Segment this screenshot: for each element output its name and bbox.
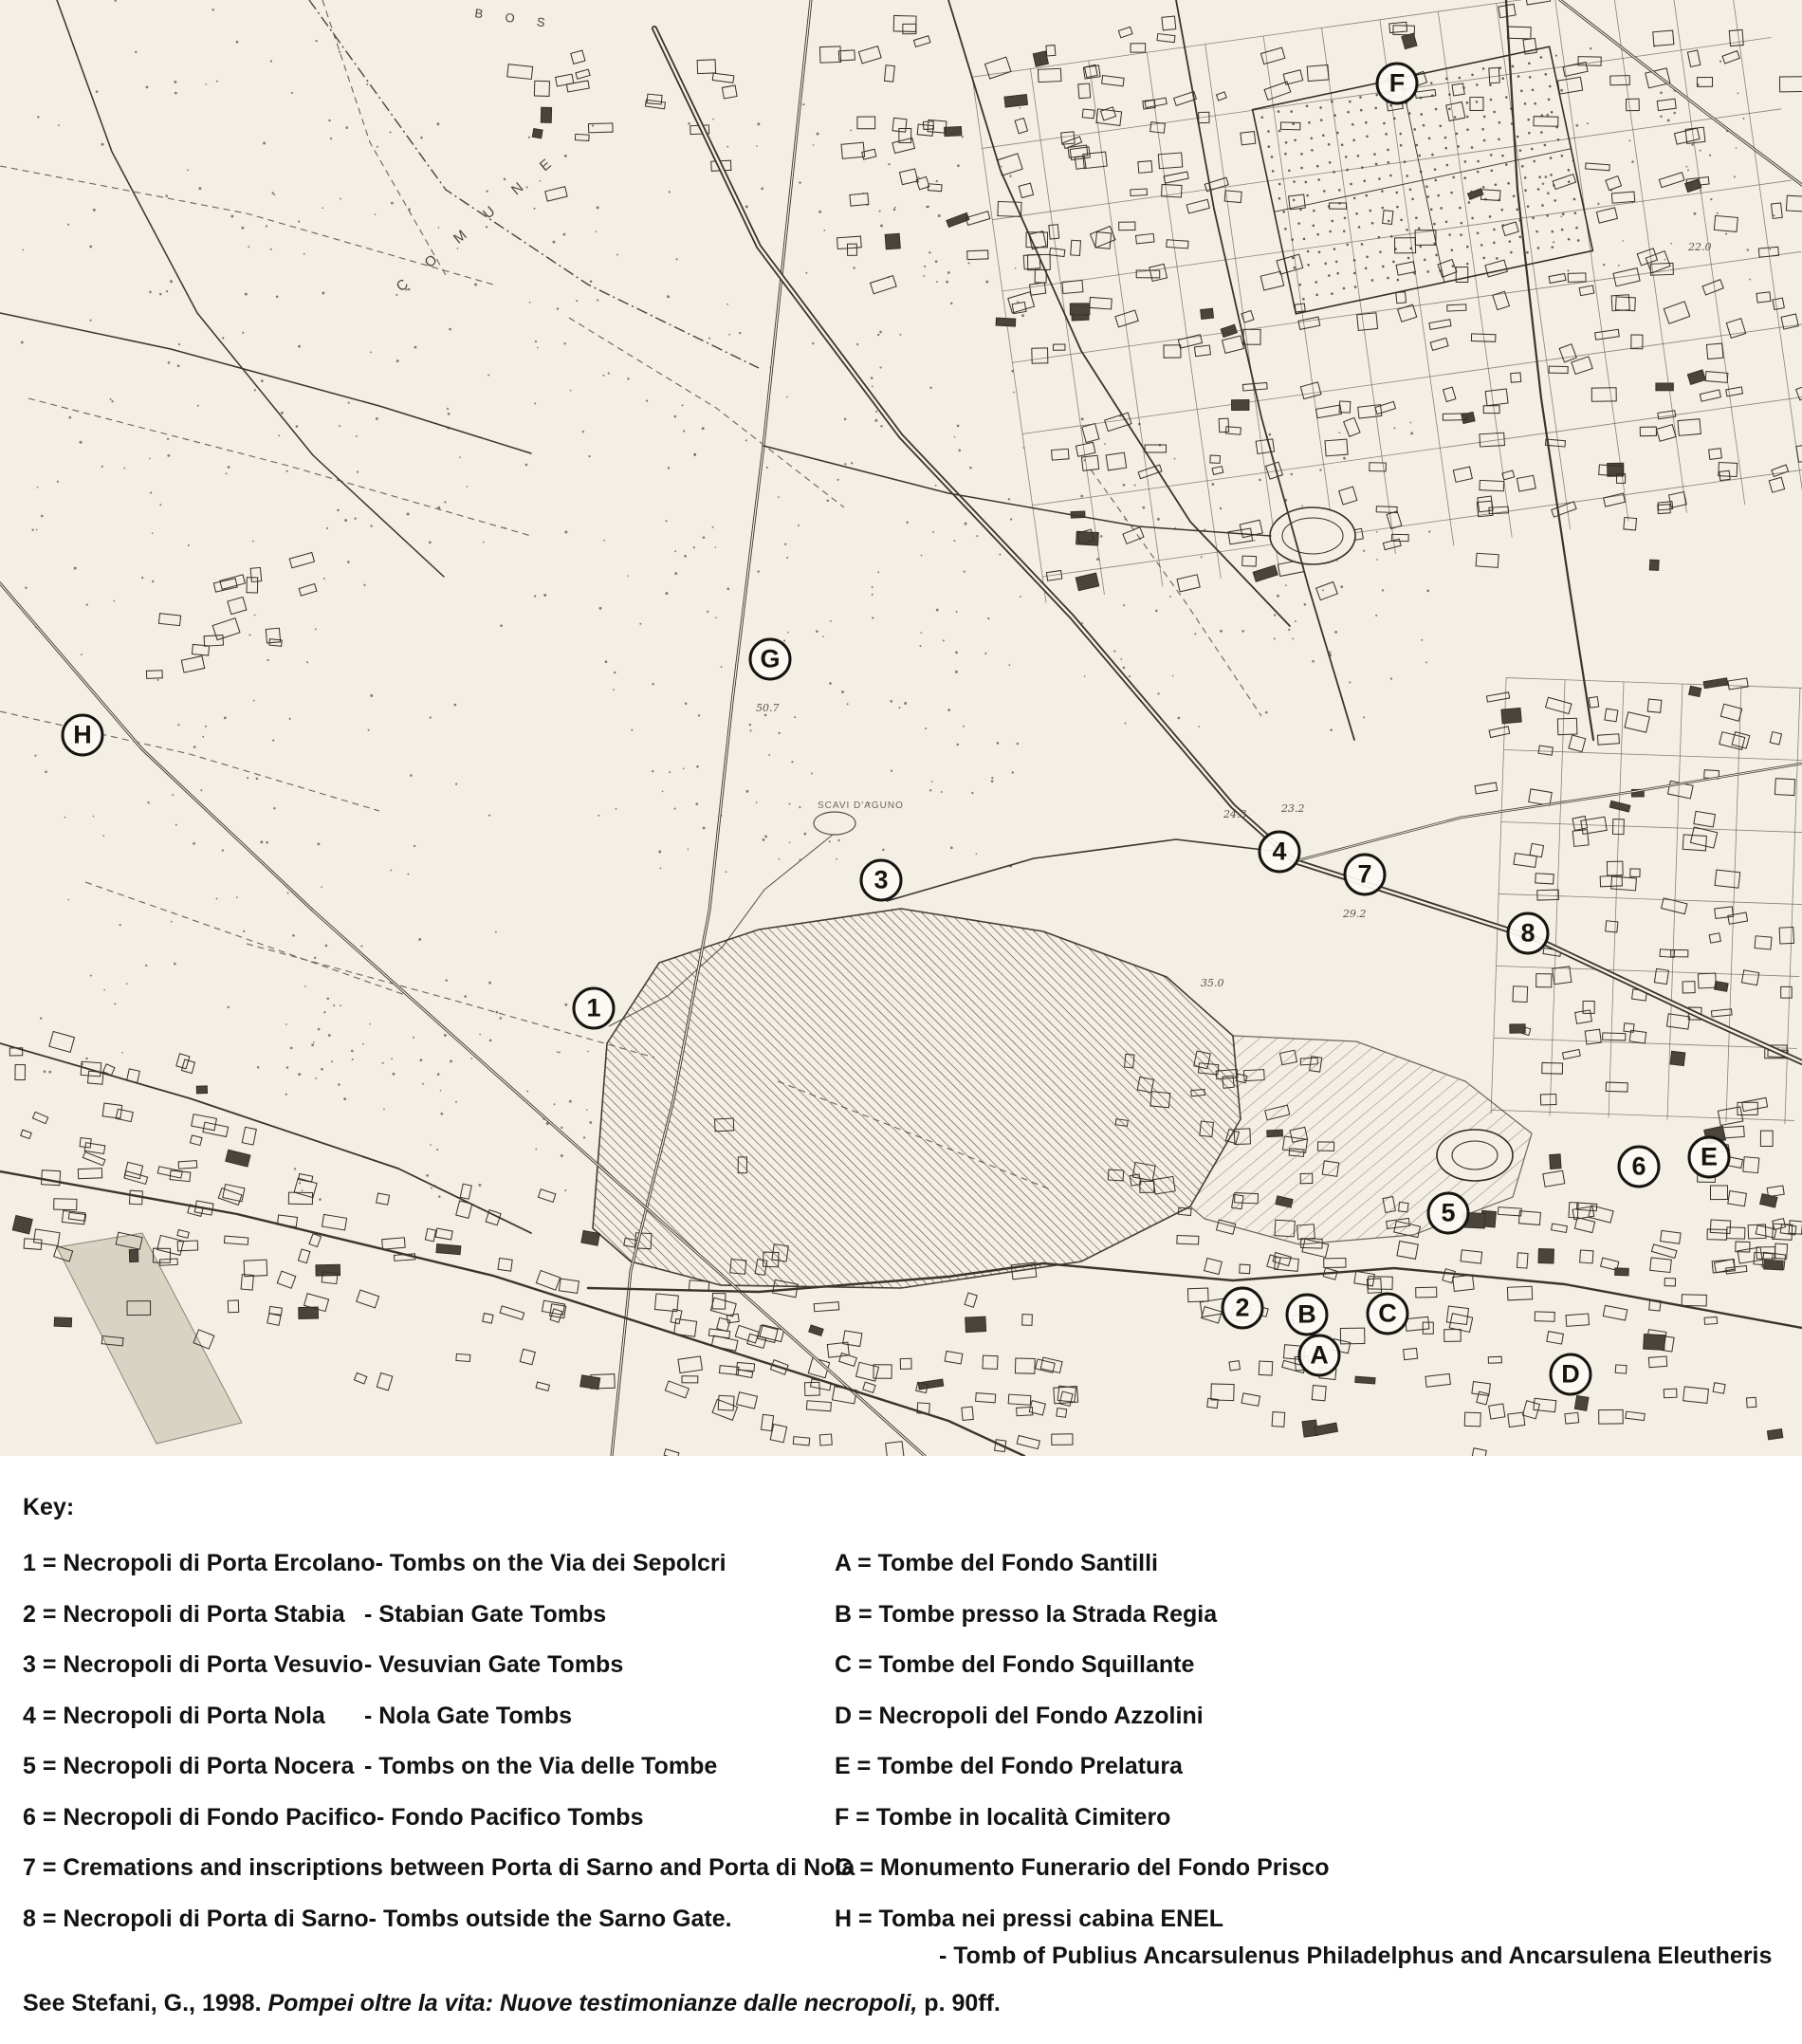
key-entry-5-name: 5 = Necropoli di Porta Nocera — [23, 1753, 364, 1780]
key-entry-B: B = Tombe presso la Strada Regia — [835, 1601, 1217, 1629]
key-entry-7: 7 = Cremations and inscriptions between … — [23, 1854, 855, 1882]
citation: See Stefani, G., 1998. Pompei oltre la v… — [23, 1990, 1001, 2017]
citation-prefix: See Stefani, G., 1998. — [23, 1990, 267, 2016]
key-entry-2-name: 2 = Necropoli di Porta Stabia — [23, 1601, 364, 1629]
map-marker-A: A — [1298, 1335, 1341, 1377]
key-entry-8-desc: - Tombs outside the Sarno Gate. — [369, 1906, 732, 1932]
key-entry-2-desc: - Stabian Gate Tombs — [364, 1601, 606, 1628]
svg-text:22.0: 22.0 — [1687, 241, 1712, 253]
key-entry-6-name: 6 = Necropoli di Fondo Pacifico — [23, 1804, 377, 1832]
pompeii-necropoli-map: 50.724.323.229.235.022.0 C O M U N E B O… — [0, 0, 1802, 1456]
key-entry-E: E = Tombe del Fondo Prelatura — [835, 1753, 1183, 1780]
key-entry-5-desc: - Tombs on the Via delle Tombe — [364, 1753, 717, 1779]
key-entry-1: 1 = Necropoli di Porta Ercolano- Tombs o… — [23, 1550, 726, 1577]
map-marker-E: E — [1688, 1136, 1731, 1179]
key-entry-8-name: 8 = Necropoli di Porta di Sarno — [23, 1906, 369, 1933]
key-entry-D: D = Necropoli del Fondo Azzolini — [835, 1703, 1204, 1730]
key-entry-A: A = Tombe del Fondo Santilli — [835, 1550, 1158, 1577]
key-entry-H-sub: - Tomb of Publius Ancarsulenus Philadelp… — [939, 1943, 1772, 1970]
key-entry-F: F = Tombe in località Cimitero — [835, 1804, 1170, 1832]
key-entry-G: G = Monumento Funerario del Fondo Prisco — [835, 1854, 1330, 1882]
key-heading: Key: — [23, 1494, 74, 1521]
svg-text:29.2: 29.2 — [1342, 908, 1367, 920]
key-entry-4-desc: - Nola Gate Tombs — [364, 1703, 572, 1729]
map-marker-C: C — [1367, 1293, 1409, 1335]
citation-suffix: p. 90ff. — [917, 1990, 1001, 2016]
map-marker-7: 7 — [1344, 854, 1387, 896]
map-label-scavi: SCAVI D'AGUNO — [818, 801, 904, 811]
map-marker-6: 6 — [1618, 1146, 1661, 1188]
map-marker-1: 1 — [573, 987, 616, 1030]
key-entry-3: 3 = Necropoli di Porta Vesuvio- Vesuvian… — [23, 1651, 623, 1679]
svg-text:35.0: 35.0 — [1201, 977, 1224, 989]
map-marker-4: 4 — [1259, 831, 1301, 874]
svg-text:23.2: 23.2 — [1280, 802, 1305, 815]
map-marker-D: D — [1550, 1353, 1592, 1396]
map-artwork: 50.724.323.229.235.022.0 C O M U N E B O… — [0, 0, 1802, 1456]
key-entry-C: C = Tombe del Fondo Squillante — [835, 1651, 1194, 1679]
map-marker-8: 8 — [1507, 912, 1550, 955]
key-entry-H: H = Tomba nei pressi cabina ENEL — [835, 1906, 1223, 1933]
key-entry-2: 2 = Necropoli di Porta Stabia- Stabian G… — [23, 1601, 606, 1629]
key-entry-4: 4 = Necropoli di Porta Nola- Nola Gate T… — [23, 1703, 572, 1730]
map-marker-5: 5 — [1427, 1192, 1470, 1235]
key-entry-5: 5 = Necropoli di Porta Nocera- Tombs on … — [23, 1753, 717, 1780]
key-entry-3-name: 3 = Necropoli di Porta Vesuvio — [23, 1651, 364, 1679]
key-entry-1-desc: - Tombs on the Via dei Sepolcri — [376, 1550, 726, 1576]
key-entry-6: 6 = Necropoli di Fondo Pacifico- Fondo P… — [23, 1804, 643, 1832]
key-entry-8: 8 = Necropoli di Porta di Sarno- Tombs o… — [23, 1906, 732, 1933]
map-marker-G: G — [749, 638, 792, 681]
key-entry-4-name: 4 = Necropoli di Porta Nola — [23, 1703, 364, 1730]
map-marker-B: B — [1286, 1294, 1329, 1336]
key-entry-1-name: 1 = Necropoli di Porta Ercolano — [23, 1550, 376, 1577]
svg-text:50.7: 50.7 — [756, 702, 780, 714]
key-entry-7-name: 7 = Cremations and inscriptions between … — [23, 1854, 855, 1882]
map-marker-H: H — [62, 714, 104, 757]
map-marker-2: 2 — [1222, 1287, 1264, 1330]
key-entry-6-desc: - Fondo Pacifico Tombs — [377, 1804, 643, 1831]
map-marker-3: 3 — [860, 859, 903, 902]
svg-text:24.3: 24.3 — [1223, 808, 1247, 820]
figure-page: { "map": { "labels": [ {"text": "C O M U… — [0, 0, 1802, 2044]
map-marker-F: F — [1376, 63, 1419, 105]
citation-title: Pompei oltre la vita: Nuove testimonianz… — [267, 1990, 917, 2016]
key-entry-3-desc: - Vesuvian Gate Tombs — [364, 1651, 623, 1678]
